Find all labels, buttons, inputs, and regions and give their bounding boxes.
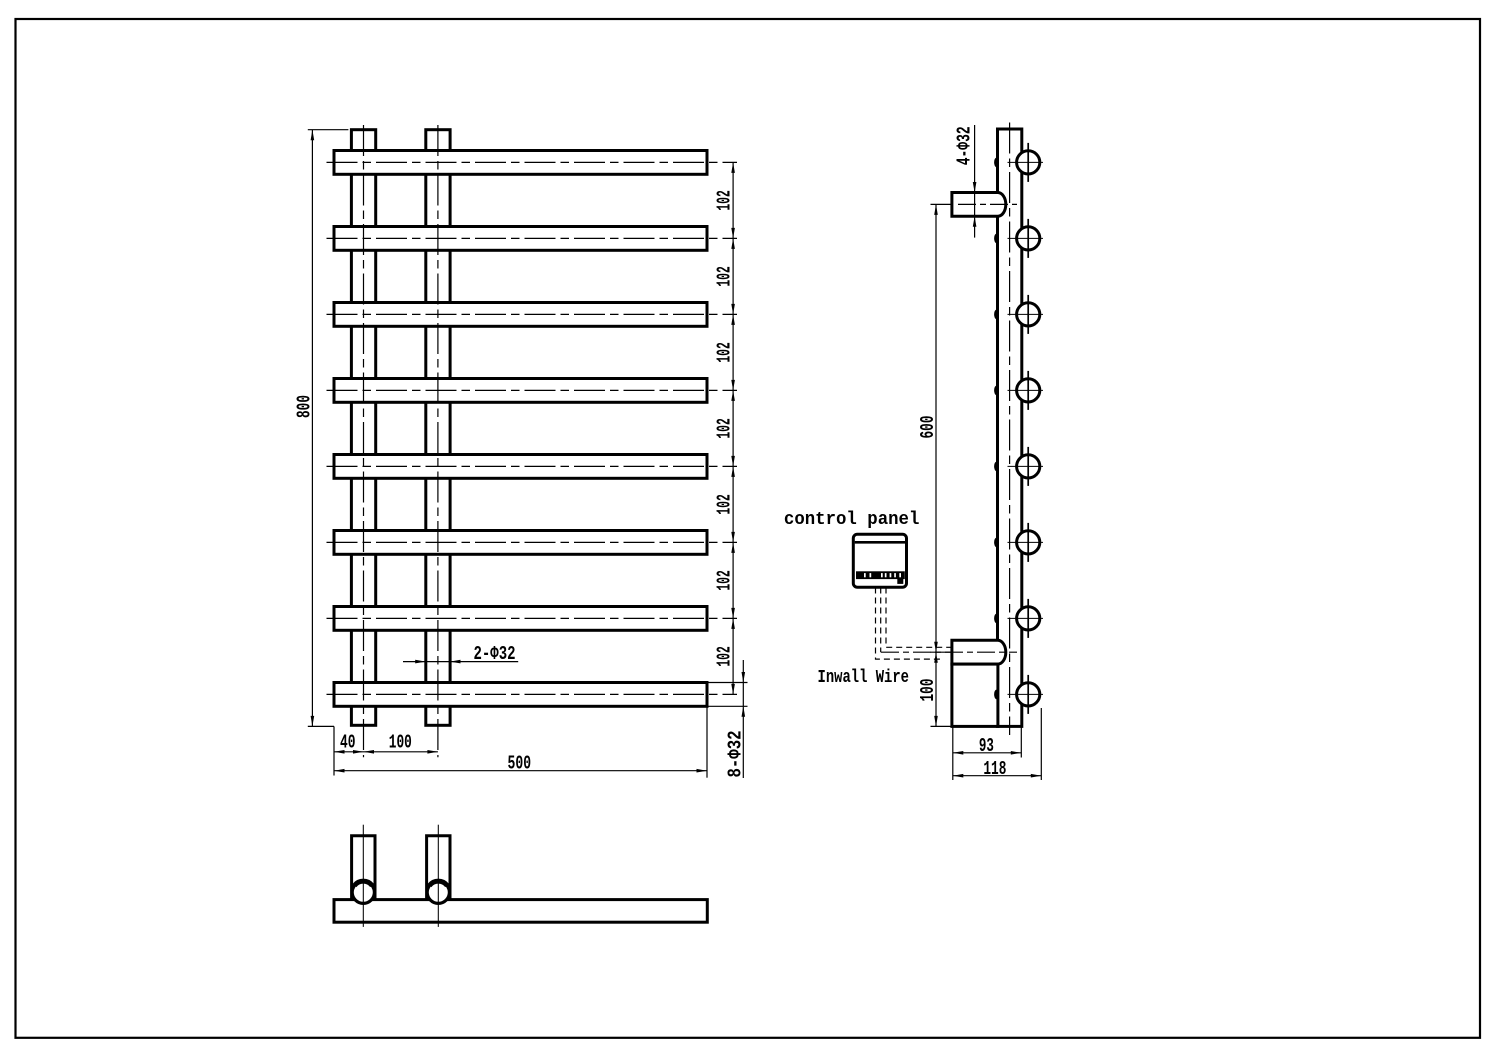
svg-text:102: 102 — [714, 342, 736, 363]
svg-text:500: 500 — [508, 752, 532, 774]
svg-text:118: 118 — [983, 758, 1006, 780]
svg-text:600: 600 — [917, 416, 939, 439]
svg-text:102: 102 — [714, 494, 736, 515]
svg-text:40: 40 — [340, 732, 356, 754]
svg-text:100: 100 — [917, 679, 939, 702]
svg-text:800: 800 — [294, 395, 316, 418]
svg-text:Inwall Wire: Inwall Wire — [818, 668, 910, 688]
svg-text:102: 102 — [714, 266, 736, 287]
svg-text:102: 102 — [714, 190, 736, 211]
svg-text:control panel: control panel — [784, 510, 920, 530]
svg-text:102: 102 — [714, 418, 736, 439]
svg-text:100: 100 — [389, 732, 412, 754]
svg-text:2-Φ32: 2-Φ32 — [474, 643, 516, 665]
svg-text:93: 93 — [979, 735, 994, 757]
svg-text:102: 102 — [714, 570, 736, 591]
svg-text:4-Φ32: 4-Φ32 — [953, 126, 975, 165]
svg-text:102: 102 — [714, 646, 736, 667]
svg-text:8-Φ32: 8-Φ32 — [724, 731, 746, 778]
